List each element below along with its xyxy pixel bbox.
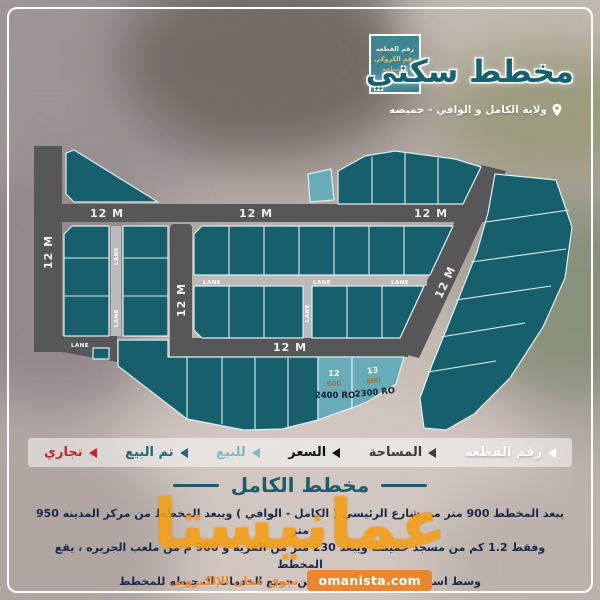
legend-label: رقم القطعة (465, 445, 542, 460)
site-tagline: سوق عمان الإلكتروني (168, 574, 298, 588)
legend-item-sold: تم البيع (125, 445, 187, 460)
plot (93, 348, 109, 359)
plot-12-price: 2400 RO (315, 391, 355, 401)
plot-block-top-right (338, 151, 481, 204)
road-label: 12 M (42, 235, 55, 269)
plot (66, 150, 158, 202)
location-pin-icon (552, 103, 562, 117)
lane-label: LANE (391, 280, 409, 286)
legend-bar: رقم القطعة المساحة السعر للبيع تم البيع … (28, 438, 572, 467)
plot-block-left-col1 (64, 226, 109, 336)
triangle-marker-icon (428, 448, 436, 458)
road-label: 12 M (90, 207, 124, 220)
plot-13-number: 13 (367, 366, 379, 376)
lane-label: LANE (203, 280, 221, 286)
lane-label: LANE (313, 280, 331, 286)
plot-block-center-top (194, 226, 453, 275)
triangle-marker-icon (180, 448, 188, 458)
road-label: 12 M (414, 207, 448, 220)
triangle-marker-icon (548, 448, 556, 458)
legend-label: تجاري (44, 445, 83, 460)
triangle-marker-icon (89, 448, 97, 458)
plot-block-left-col2 (123, 226, 168, 336)
plot-12[interactable] (318, 357, 352, 420)
location-text: ولاية الكامل و الوافي - حميضه (389, 104, 547, 116)
plot-12-area: 600 (327, 380, 342, 388)
plot-for-sale-small[interactable] (308, 169, 334, 202)
triangle-marker-icon (332, 448, 340, 458)
footer: سوق عمان الإلكتروني omanista.com (0, 570, 600, 591)
lane-label: LANE (114, 309, 120, 327)
lane-label: LANE (114, 247, 120, 265)
legend-label: للبيع (216, 445, 246, 460)
road-label: 12 M (273, 341, 307, 354)
location-line: ولاية الكامل و الوافي - حميضه (389, 103, 562, 117)
legend-label: السعر (288, 445, 326, 460)
legend-item-area: المساحة (369, 445, 436, 460)
legend-item-price: السعر (288, 445, 340, 460)
watermark: عمانيستا (153, 492, 446, 560)
legend-label: تم البيع (125, 445, 173, 460)
triangle-marker-icon (252, 448, 260, 458)
legend-label: المساحة (369, 445, 422, 460)
road-label: 12 M (239, 207, 273, 220)
road-label: 12 M (175, 283, 188, 317)
website-badge[interactable]: omanista.com (307, 570, 431, 591)
legend-item-commercial: تجاري (44, 445, 97, 460)
plot-12-number: 12 (328, 369, 339, 378)
lane-label: LANE (305, 304, 311, 322)
legend-item-for-sale: للبيع (216, 445, 260, 460)
info-card-line: رقم القطعه (376, 45, 414, 54)
page-title: مخطط سكني (366, 54, 574, 90)
lane-label: LANE (71, 343, 89, 349)
poster: 12 600 2400 RO 13 600 2300 RO 12 M 12 M … (0, 0, 600, 600)
legend-item-plot-number: رقم القطعة (465, 445, 556, 460)
plot-13-area: 600 (366, 376, 381, 385)
plot-block-center-bottom-left (194, 286, 303, 338)
